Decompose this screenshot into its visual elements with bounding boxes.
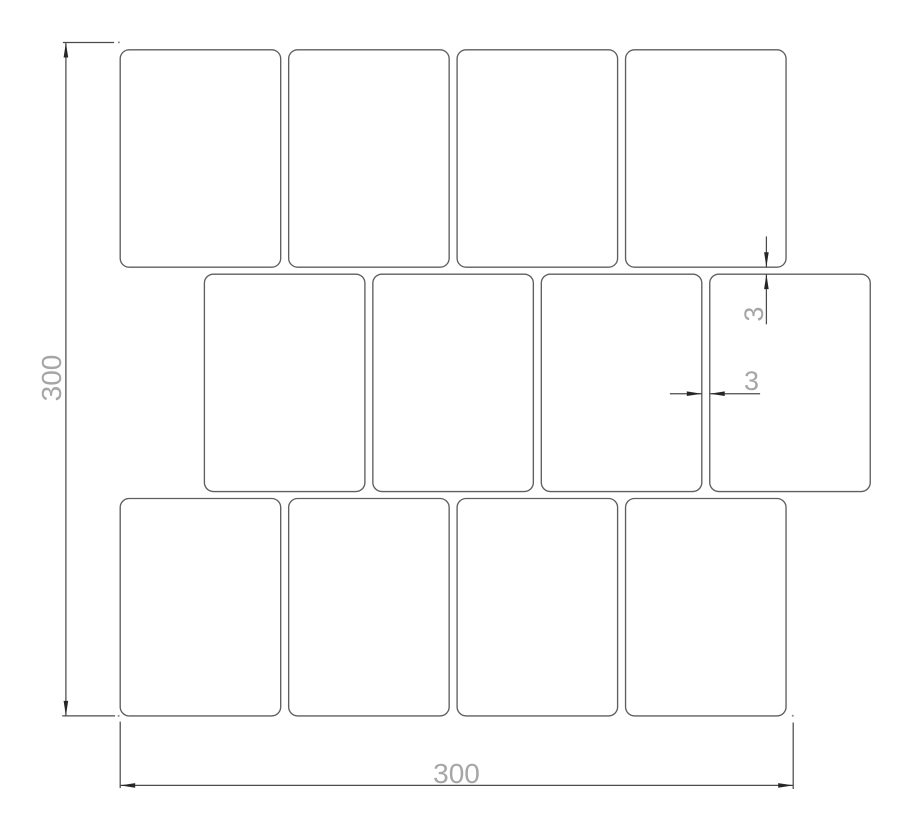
svg-text:300: 300 <box>36 355 67 402</box>
svg-text:3: 3 <box>739 307 769 322</box>
svg-text:300: 300 <box>433 758 480 789</box>
svg-text:3: 3 <box>744 366 759 396</box>
